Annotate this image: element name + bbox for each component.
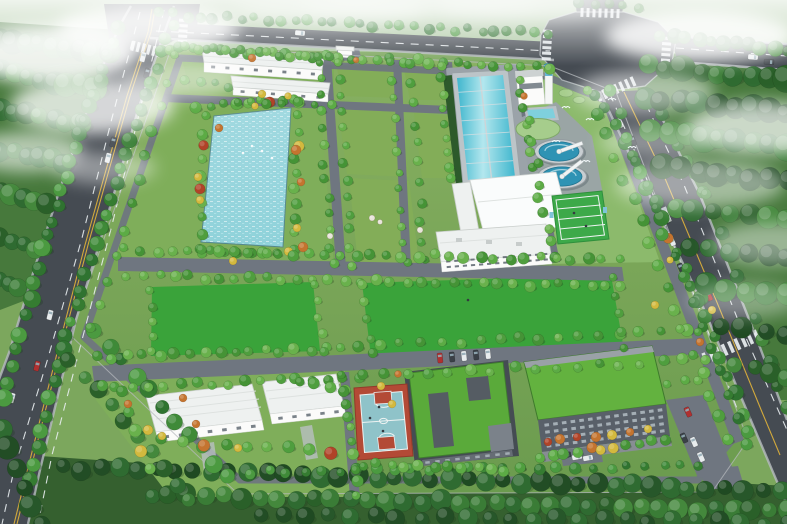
cloud: [52, 152, 156, 184]
courtyard: [466, 376, 491, 401]
window: [544, 423, 549, 427]
window: [597, 423, 602, 427]
window: [545, 430, 550, 434]
window: [605, 415, 610, 419]
waterfowl: [271, 157, 274, 160]
waterfowl: [261, 150, 264, 153]
accent-shrub: [192, 420, 200, 428]
accent-shrub: [591, 432, 601, 442]
car: [461, 351, 467, 361]
window: [251, 425, 256, 429]
landscape-pond: [201, 108, 291, 247]
roof-vent: [516, 242, 522, 246]
accent-shrub: [395, 371, 402, 378]
waterfowl: [242, 152, 245, 155]
accent-shrub: [555, 434, 565, 444]
window: [240, 67, 244, 70]
window: [463, 265, 467, 267]
window: [271, 92, 275, 95]
person: [585, 225, 588, 228]
accent-shrub: [521, 93, 528, 100]
window: [282, 70, 286, 73]
window: [475, 455, 480, 458]
accent-shrub: [179, 394, 187, 402]
window: [615, 421, 620, 425]
accent-shrub: [544, 438, 552, 446]
window: [614, 414, 619, 418]
window: [651, 430, 656, 434]
window: [623, 420, 628, 424]
window: [579, 419, 584, 423]
accent-shrub: [258, 90, 266, 98]
window: [631, 412, 636, 416]
window: [471, 264, 475, 266]
accent-shrub: [667, 257, 674, 264]
window: [553, 422, 558, 426]
window: [581, 433, 586, 437]
window: [632, 419, 637, 423]
window: [240, 90, 244, 93]
window: [571, 427, 576, 431]
person: [369, 417, 372, 420]
tank-hub: [557, 149, 562, 154]
accent-shrub: [293, 224, 301, 232]
window: [588, 417, 593, 421]
accent-shrub: [573, 433, 581, 441]
window: [278, 417, 283, 420]
window: [570, 420, 575, 424]
person: [573, 212, 576, 215]
window: [425, 461, 430, 464]
window: [505, 452, 510, 455]
person: [382, 430, 385, 433]
window: [334, 410, 339, 413]
pond-sheen: [201, 108, 291, 247]
window: [208, 430, 213, 434]
person: [378, 406, 381, 409]
accent-shrub: [327, 233, 333, 239]
accent-shrub: [298, 242, 308, 252]
accent-shrub: [388, 400, 396, 408]
window: [297, 71, 301, 74]
accent-shrub: [196, 196, 204, 204]
window: [589, 424, 594, 428]
accent-shrub: [644, 425, 652, 433]
window: [564, 442, 569, 446]
window: [222, 428, 227, 432]
accent-shrub: [378, 220, 383, 225]
accent-shrub: [158, 432, 166, 440]
person: [467, 299, 470, 302]
window: [562, 421, 567, 425]
roof-wing: [488, 423, 514, 452]
window: [254, 68, 258, 71]
accent-shrub: [252, 103, 259, 110]
waterfowl: [251, 145, 254, 148]
window: [311, 72, 315, 75]
accent-shrub: [377, 382, 385, 390]
roof-vent: [486, 240, 492, 244]
window: [479, 263, 483, 265]
window: [495, 453, 500, 456]
basketball-court: [354, 384, 413, 460]
window: [465, 457, 470, 460]
window: [447, 266, 451, 268]
car: [473, 350, 479, 360]
window: [485, 454, 490, 457]
window: [292, 415, 297, 418]
accent-shrub: [291, 145, 301, 155]
court-pad: [550, 212, 554, 218]
window: [615, 428, 620, 432]
window: [658, 408, 663, 412]
horizon-haze: [0, 0, 787, 66]
roof-vent: [456, 238, 462, 242]
window: [268, 69, 272, 72]
accent-shrub: [369, 215, 375, 221]
car: [449, 352, 455, 362]
accent-shrub: [234, 444, 242, 452]
window: [580, 426, 585, 430]
green-mound-small: [559, 89, 573, 97]
court-pad: [603, 207, 607, 213]
window: [649, 409, 654, 413]
key-area: [378, 436, 396, 450]
cloud: [575, 70, 715, 114]
window: [562, 428, 567, 432]
window: [641, 418, 646, 422]
window: [455, 265, 459, 267]
cloud: [615, 160, 785, 208]
accent-shrub: [194, 173, 202, 181]
window: [320, 412, 325, 415]
window: [236, 426, 241, 430]
tank-hub: [560, 174, 565, 179]
green-tank-mound: [516, 119, 560, 140]
accent-shrub: [124, 400, 132, 408]
window: [597, 416, 602, 420]
window: [650, 416, 655, 420]
window: [573, 441, 578, 445]
aerial-site-rendering: Aerial bird's-eye rendering of a landsca…: [0, 0, 787, 524]
accent-shrub: [626, 428, 634, 436]
accent-shrub: [297, 178, 305, 186]
green-sports-court: [550, 191, 610, 244]
courtyard-building-green-roof: [404, 360, 519, 466]
accent-shrub: [215, 124, 223, 132]
window: [306, 413, 311, 416]
accent-shrub: [696, 338, 704, 346]
car: [485, 349, 491, 359]
accent-shrub: [229, 257, 237, 265]
window: [455, 458, 460, 461]
accent-shrub: [607, 430, 617, 440]
window: [640, 411, 645, 415]
accent-shrub: [417, 227, 423, 233]
accent-shrub: [285, 93, 292, 100]
window: [658, 415, 663, 419]
window: [606, 422, 611, 426]
window: [633, 426, 638, 430]
window: [554, 429, 559, 433]
accent-shrub: [143, 425, 153, 435]
window: [623, 413, 628, 417]
window: [634, 433, 639, 437]
accent-shrub: [651, 301, 659, 309]
cloud: [599, 126, 709, 158]
window: [581, 440, 586, 444]
window: [470, 258, 474, 260]
viewport: Aerial bird's-eye rendering of a landsca…: [0, 0, 787, 524]
car: [437, 353, 443, 363]
window: [660, 429, 665, 433]
window: [659, 422, 664, 426]
